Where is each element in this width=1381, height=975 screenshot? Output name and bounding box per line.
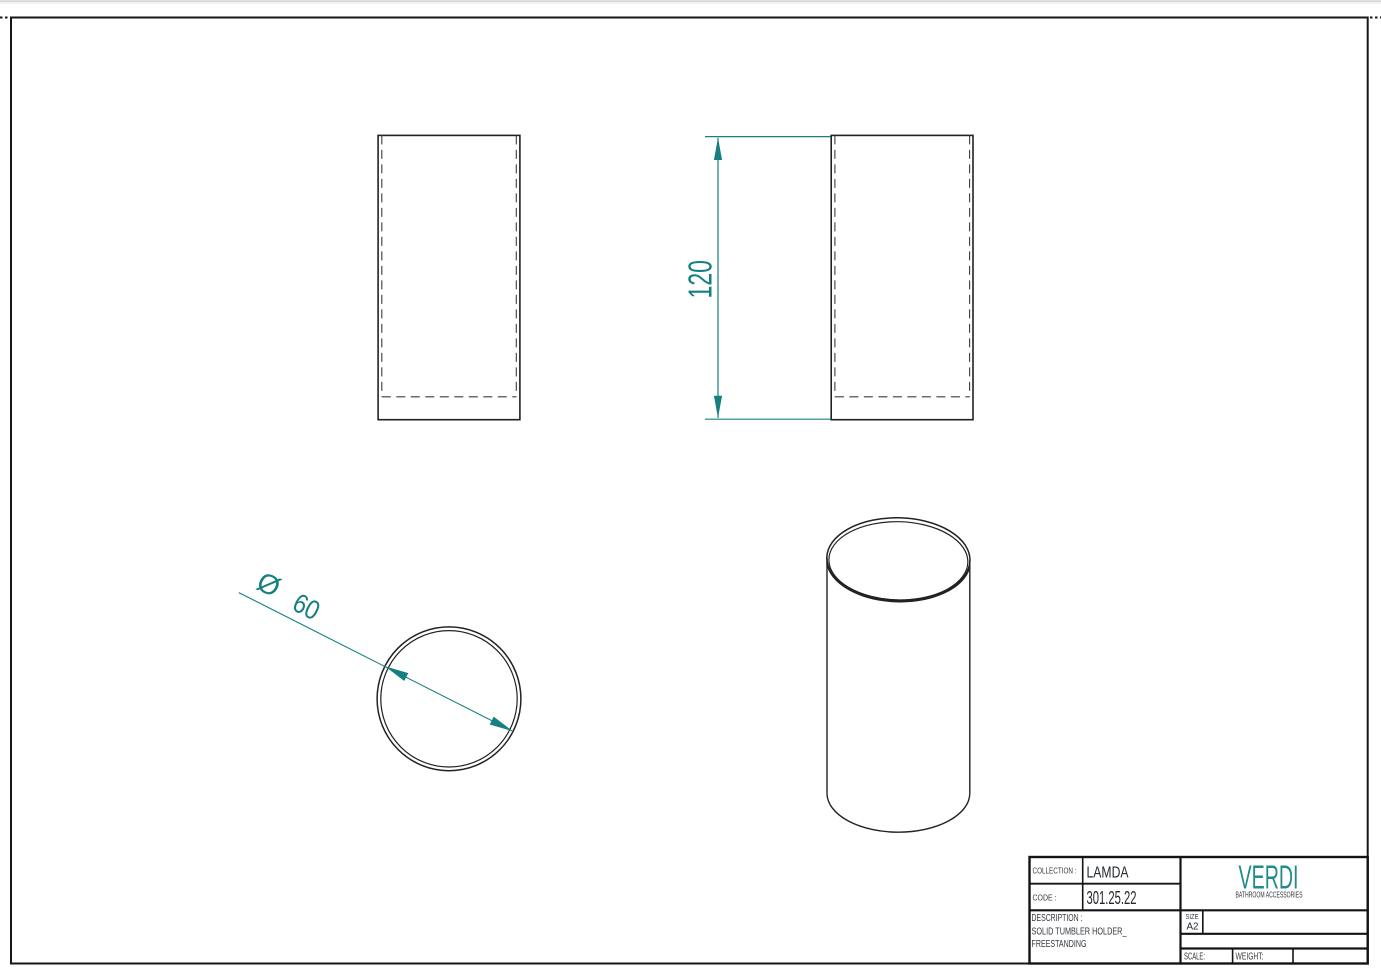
svg-text:CODE :: CODE : bbox=[1033, 894, 1057, 903]
svg-text:LAMDA: LAMDA bbox=[1087, 865, 1129, 882]
svg-text:301.25.22: 301.25.22 bbox=[1087, 888, 1137, 908]
svg-text:COLLECTION :: COLLECTION : bbox=[1033, 867, 1077, 876]
svg-text:FREESTANDING: FREESTANDING bbox=[1032, 939, 1087, 950]
svg-text:WEIGHT:: WEIGHT: bbox=[1236, 951, 1264, 963]
svg-text:120: 120 bbox=[682, 260, 719, 299]
svg-text:DESCRIPTION :: DESCRIPTION : bbox=[1032, 913, 1083, 924]
svg-text:SCALE:: SCALE: bbox=[1184, 951, 1205, 963]
svg-text:Ø: Ø bbox=[252, 566, 285, 604]
svg-text:SOLID TUMBLER HOLDER_: SOLID TUMBLER HOLDER_ bbox=[1032, 927, 1127, 938]
svg-text:A2: A2 bbox=[1187, 922, 1199, 933]
svg-text:SIZE: SIZE bbox=[1186, 914, 1199, 921]
svg-text:BATHROOM ACCESSORIES: BATHROOM ACCESSORIES bbox=[1236, 890, 1303, 899]
